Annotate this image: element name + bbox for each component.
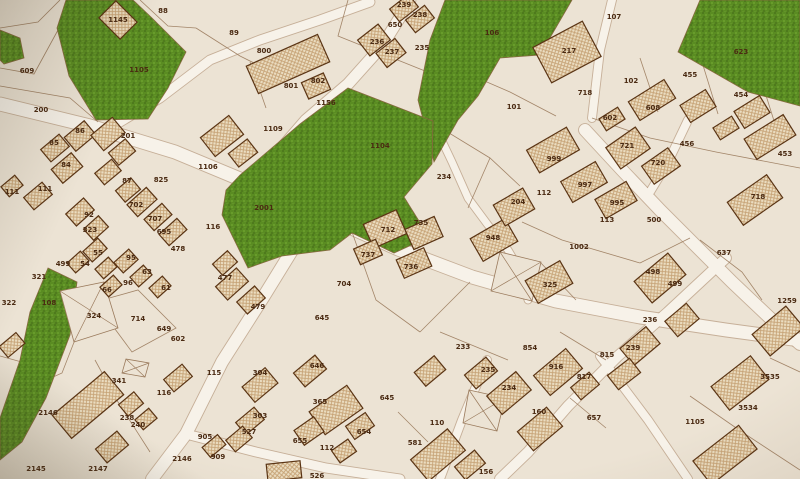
parcel-label: 111	[38, 185, 53, 193]
parcel-label: 646	[310, 362, 325, 370]
parcel-label: 655	[293, 437, 308, 445]
parcel-label: 1106	[198, 163, 218, 171]
parcel-label: 66	[102, 286, 112, 294]
parcel-label: 735	[414, 219, 429, 227]
parcel-label: 602	[603, 114, 618, 122]
parcel-label: 714	[131, 315, 146, 323]
parcel-label: 498	[646, 268, 661, 276]
parcel-label: 802	[311, 77, 326, 85]
parcel-label: 707	[148, 215, 163, 223]
parcel-label: 201	[121, 132, 136, 140]
parcel-label: 240	[131, 421, 146, 429]
parcel-label: 88	[158, 7, 168, 15]
parcel-label: 1104	[370, 142, 390, 150]
parcel-label: 637	[717, 249, 732, 257]
parcel-label: 623	[734, 48, 749, 56]
parcel-label: 323	[83, 226, 98, 234]
parcel-label: 3534	[738, 404, 758, 412]
parcel-label: 84	[61, 161, 71, 169]
parcel-label: 95	[126, 254, 136, 262]
parcel-label: 695	[157, 228, 172, 236]
parcel-label: 817	[577, 373, 592, 381]
parcel-label: 111	[5, 188, 20, 196]
parcel-label: 237	[385, 48, 400, 56]
parcel-label: 718	[578, 89, 593, 97]
parcel-label: 112	[537, 189, 552, 197]
parcel-label: 477	[218, 274, 233, 282]
parcel-label: 96	[123, 279, 133, 287]
parcel-label: 204	[511, 198, 526, 206]
parcel-label: 645	[315, 314, 330, 322]
parcel-label: 107	[607, 13, 622, 21]
parcel-label: 500	[647, 216, 662, 224]
parcel-label: 527	[242, 428, 257, 436]
parcel-label: 108	[42, 299, 57, 307]
parcel-label: 102	[624, 77, 639, 85]
parcel-label: 737	[361, 251, 376, 259]
parcel-label: 156	[479, 468, 494, 476]
parcel-label: 115	[207, 369, 222, 377]
parcel-label: 303	[253, 412, 268, 420]
parcel-label: 101	[507, 103, 522, 111]
parcel-label: 479	[251, 303, 266, 311]
parcel-label: 718	[751, 193, 766, 201]
parcel-label: 1156	[316, 99, 336, 107]
parcel-label: 365	[313, 398, 328, 406]
parcel-label: 239	[626, 344, 641, 352]
parcel-label: 854	[523, 344, 538, 352]
parcel-label: 113	[600, 216, 615, 224]
map-canvas: 8811451105609200898008018021156650239238…	[0, 0, 800, 479]
parcel-label: 324	[87, 312, 102, 320]
parcel-label: 2146	[38, 409, 58, 417]
parcel-label: 712	[381, 226, 396, 234]
parcel-label: 455	[683, 71, 698, 79]
parcel-label: 609	[20, 67, 35, 75]
parcel-label: 825	[154, 176, 169, 184]
parcel-label: 236	[643, 316, 658, 324]
parcel-label: 602	[171, 335, 186, 343]
parcel-label: 478	[171, 245, 186, 253]
parcel-label: 916	[549, 363, 564, 371]
parcel-label: 1259	[777, 297, 797, 305]
parcel-label: 456	[680, 140, 695, 148]
parcel-label: 2145	[26, 465, 46, 473]
parcel-label: 1105	[685, 418, 705, 426]
parcel-label: 2147	[88, 465, 108, 473]
parcel-label: 236	[370, 38, 385, 46]
parcel-label: 948	[486, 234, 501, 242]
parcel-label: 234	[437, 173, 452, 181]
parcel-label: 702	[129, 201, 144, 209]
parcel-label: 3535	[760, 373, 780, 381]
parcel-label: 1145	[108, 16, 128, 24]
parcel-label: 645	[380, 394, 395, 402]
parcel-label: 86	[75, 127, 85, 135]
parcel-label: 92	[84, 211, 94, 219]
parcel-label: 200	[34, 106, 49, 114]
parcel-label: 800	[257, 47, 272, 55]
parcel-label: 997	[578, 181, 593, 189]
parcel-label: 721	[620, 142, 635, 150]
parcel-label: 325	[543, 281, 558, 289]
parcel-label: 55	[93, 249, 103, 257]
parcel-label: 736	[404, 263, 419, 271]
parcel-label: 235	[481, 366, 496, 374]
parcel-label: 89	[229, 29, 239, 37]
parcel-label: 239	[397, 1, 412, 9]
parcel-label: 499	[56, 260, 71, 268]
parcel-label: 649	[157, 325, 172, 333]
parcel-label: 608	[646, 104, 661, 112]
parcel-label: 87	[122, 177, 132, 185]
parcel-label: 217	[562, 47, 577, 55]
parcel-label: 581	[408, 439, 423, 447]
parcel-label: 233	[456, 343, 471, 351]
parcel-label: 909	[211, 453, 226, 461]
parcel-label: 453	[778, 150, 793, 158]
parcel-label: 650	[388, 21, 403, 29]
parcel-label: 657	[587, 414, 602, 422]
parcel-label: 116	[157, 389, 172, 397]
building-footprint	[266, 461, 302, 479]
parcel-label: 1109	[263, 125, 283, 133]
parcel-label: 2001	[254, 204, 274, 212]
parcel-label: 238	[413, 11, 428, 19]
parcel-label: 720	[651, 159, 666, 167]
parcel-label: 801	[284, 82, 299, 90]
parcel-label: 499	[668, 280, 683, 288]
parcel-label: 61	[161, 284, 171, 292]
parcel-label: 85	[49, 139, 59, 147]
parcel-label: 106	[485, 29, 500, 37]
parcel-label: 234	[502, 384, 517, 392]
parcel-label: 63	[142, 268, 152, 276]
parcel-label: 160	[532, 408, 547, 416]
parcel-label: 1002	[569, 243, 589, 251]
parcel-label: 321	[32, 273, 47, 281]
parcel-label: 54	[80, 260, 90, 268]
parcel-label: 454	[734, 91, 749, 99]
parcel-label: 112	[320, 444, 335, 452]
parcel-label: 116	[206, 223, 221, 231]
parcel-label: 905	[198, 433, 213, 441]
parcel-label: 654	[357, 428, 372, 436]
parcel-label: 2146	[172, 455, 192, 463]
parcel-label: 526	[310, 472, 325, 479]
parcel-label: 995	[610, 199, 625, 207]
parcel-label: 999	[547, 155, 562, 163]
parcel-label: 704	[337, 280, 352, 288]
parcel-label: 235	[415, 44, 430, 52]
parcel-label: 815	[600, 351, 615, 359]
parcel-label: 110	[430, 419, 445, 427]
parcel-label: 1105	[129, 66, 149, 74]
cadastral-map[interactable]: 8811451105609200898008018021156650239238…	[0, 0, 800, 479]
parcel-label: 304	[253, 369, 268, 377]
parcel-label: 341	[112, 377, 127, 385]
parcel-label: 322	[2, 299, 17, 307]
